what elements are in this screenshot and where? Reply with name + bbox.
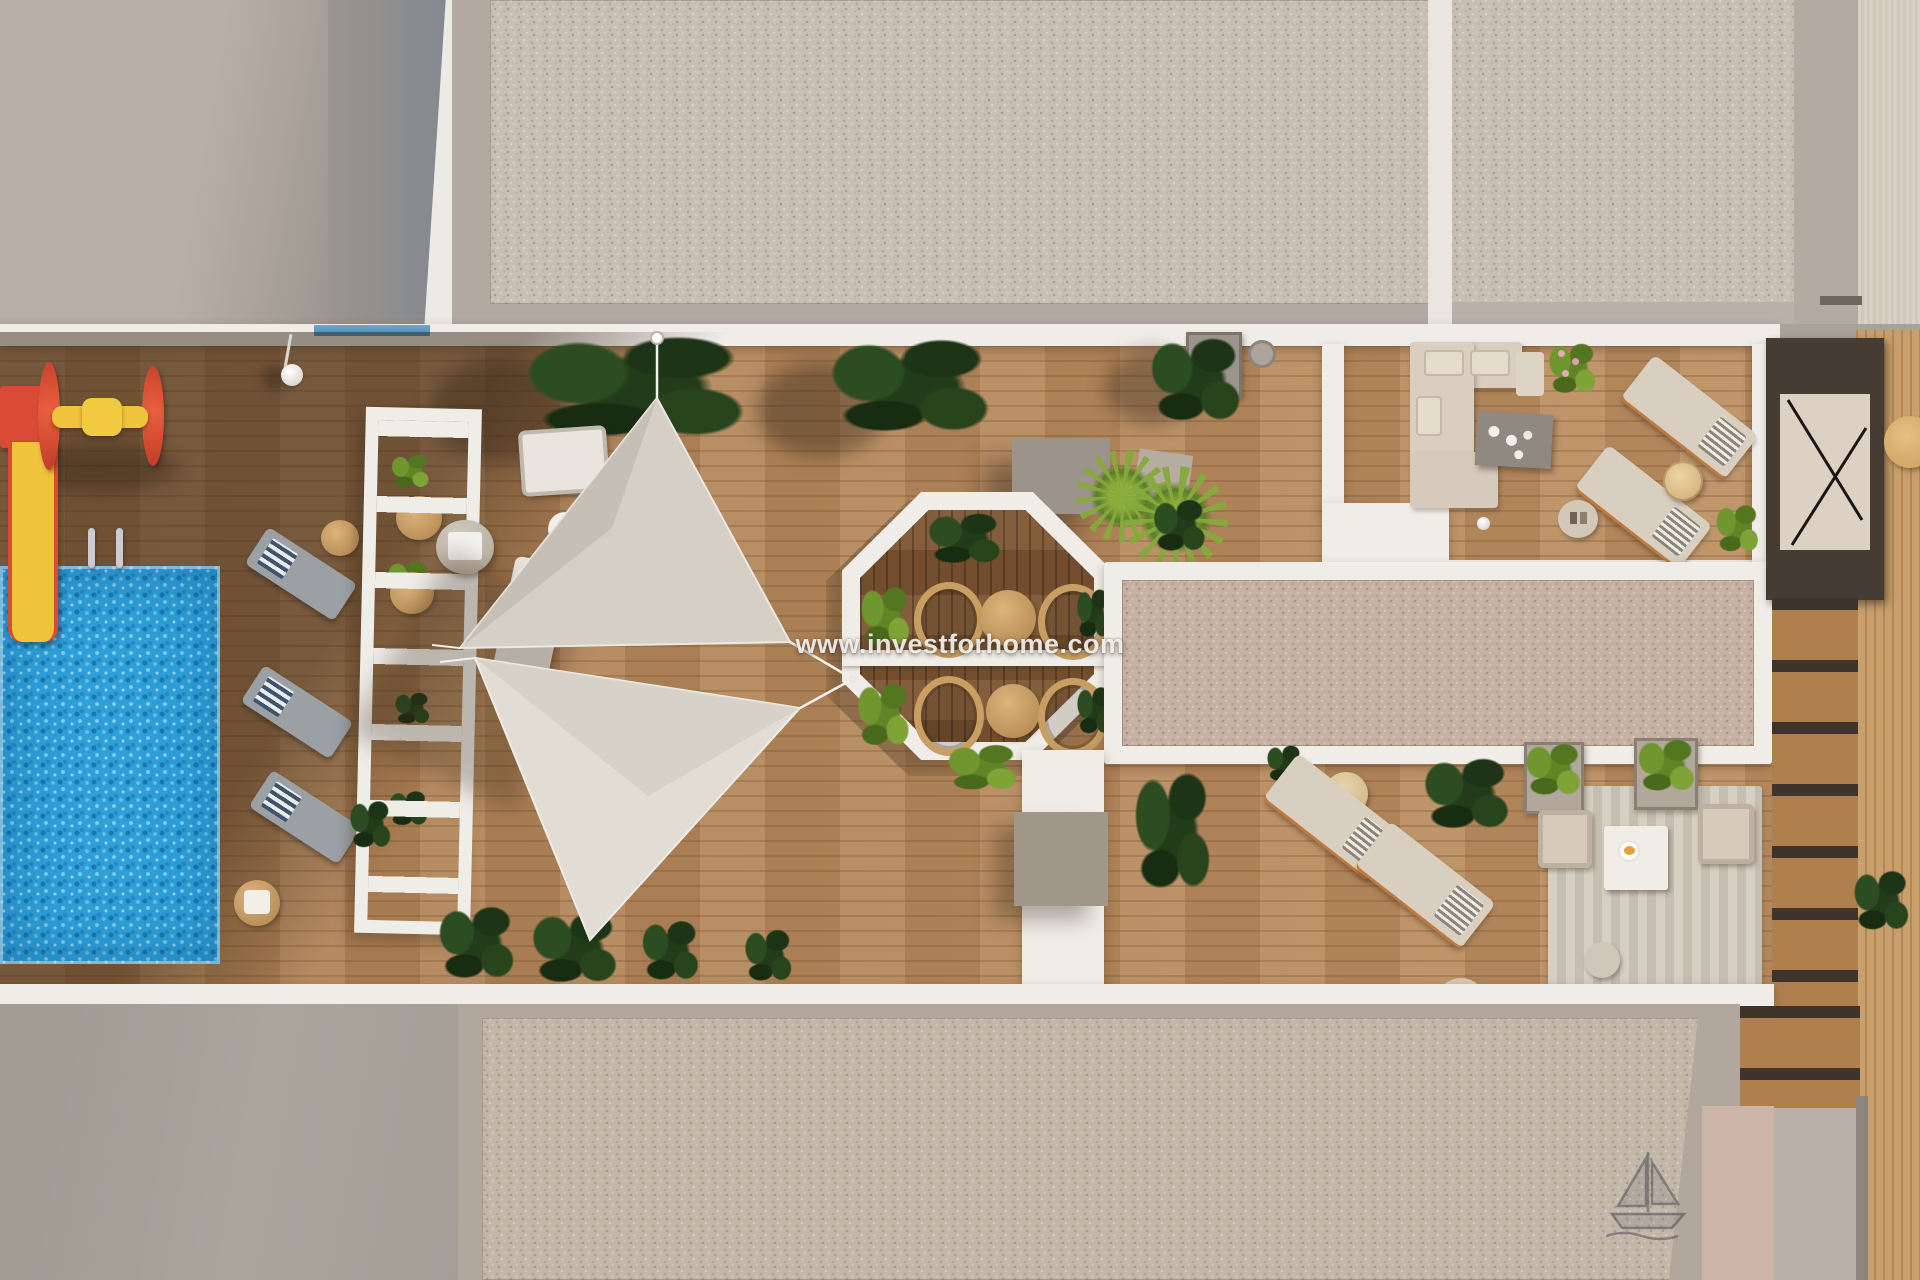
sail-anchor <box>849 675 858 684</box>
sailboat-sketch <box>1606 1152 1684 1239</box>
stair-railing <box>1788 400 1862 520</box>
watermark: www.investforhome.com <box>0 629 1920 660</box>
rooftop-terrace-render: www.investforhome.com <box>0 0 1920 1280</box>
stair-railing <box>1792 428 1866 545</box>
sail-rope <box>800 679 853 708</box>
sail-pole <box>651 332 663 344</box>
shade-sail-upper <box>460 398 790 648</box>
